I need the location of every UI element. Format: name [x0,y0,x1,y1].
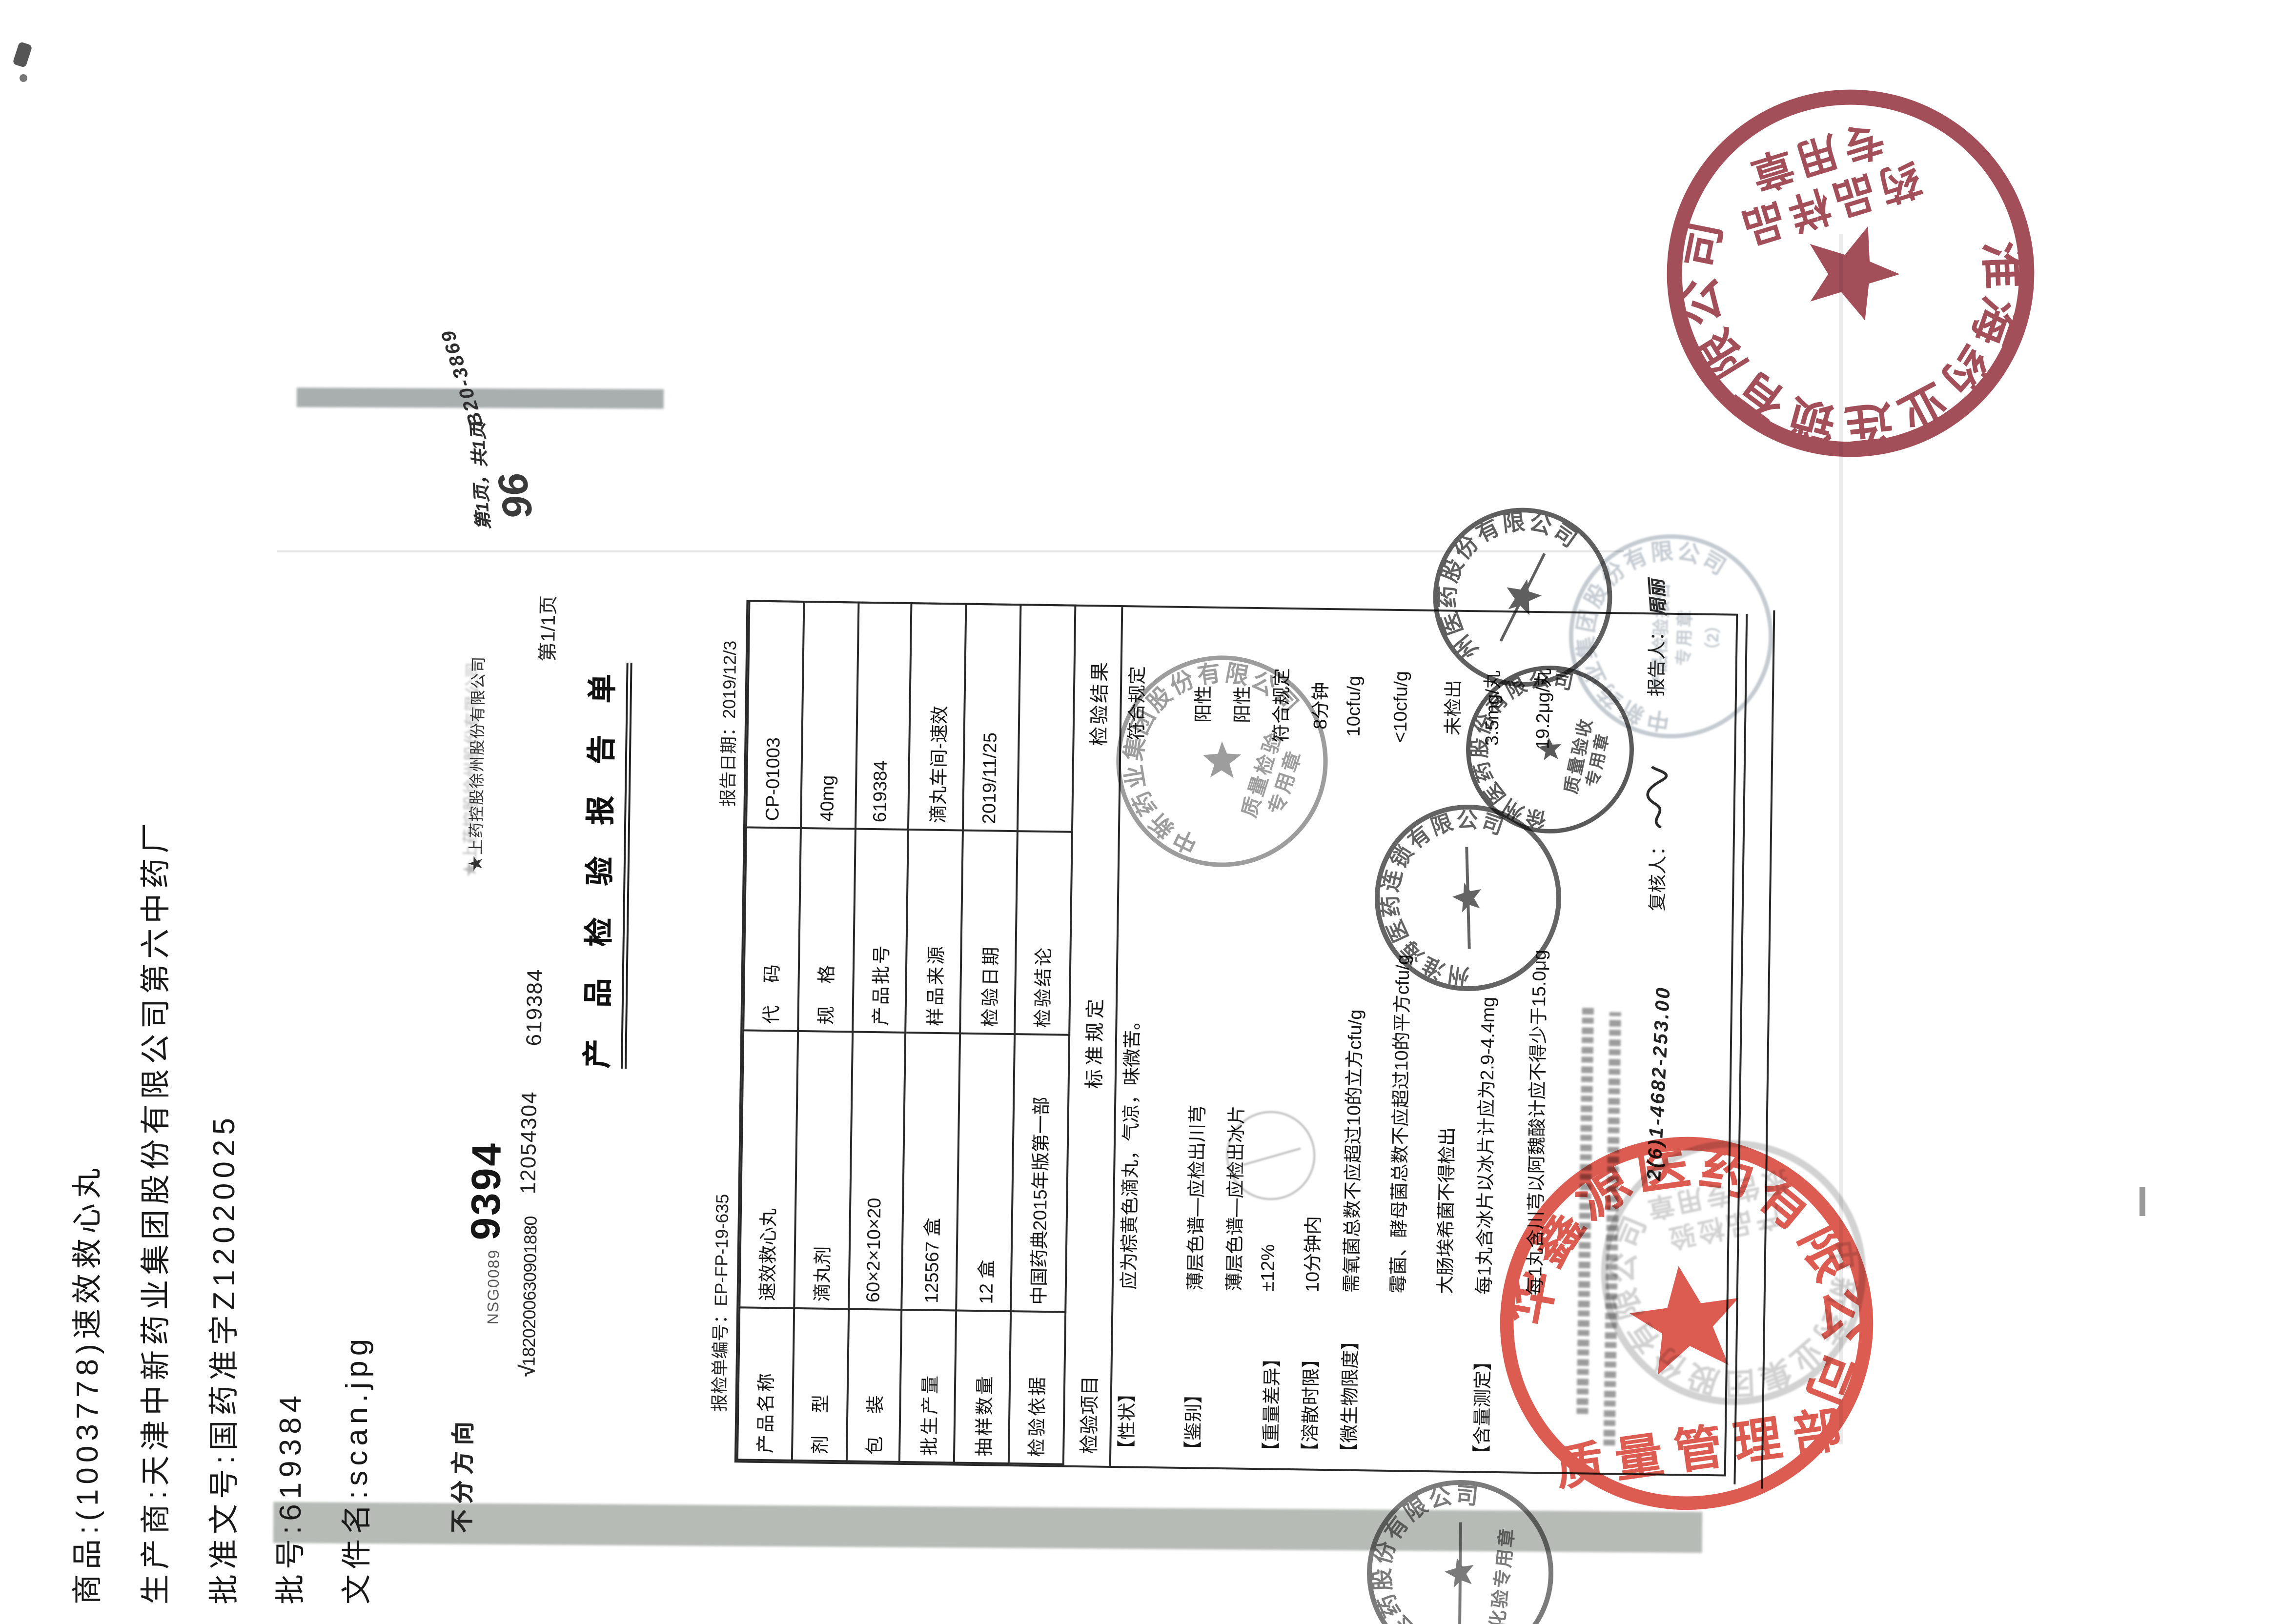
info-value-1-3: CP-01003 [746,601,804,828]
scan-edge-band-bottom [273,1502,1703,1553]
info-value-6-3 [1018,605,1075,832]
item-result: 阳性 [1186,608,1216,800]
svg-text:产品检验报告: 产品检验报告 [1650,581,1672,691]
item-name: 【重量差异】 [1255,1291,1285,1468]
scan-mark-right [2139,1187,2145,1216]
reviewer-line: 复核人： [1642,765,1671,911]
distributor-header-ghost: ★上药控股徐州股份有限公司 [460,661,484,877]
svg-text:质量管理部: 质量管理部 [1552,1401,1856,1496]
item-standard: 薄层色谱—应检出川芎 [1180,800,1214,1291]
handwritten-ref-note: B20-3869 [438,326,489,429]
handwritten-number-96: 96 [491,469,545,522]
item-result: 3.5mg/丸 [1475,612,1505,804]
info-value-6-1: 中国药典2015年版第一部 [1011,1034,1069,1312]
scan-crease-line [277,550,1624,552]
svg-text:化验专用章: 化验专用章 [1487,1525,1519,1624]
info-label-3-1: 产品批号 [852,829,909,1033]
side-meta-line-4: 批号:619384 [267,1391,310,1604]
item-row-2: 【鉴别】薄层色谱—应检出川芎阳性 [1177,608,1228,1467]
svg-text:天津中新药业集团股份有限公司: 天津中新药业集团股份有限公司 [1569,534,1732,737]
item-row-9: 【含量测定】每1丸含冰片以冰片计应为2.9-4.4mg3.5mg/丸 [1466,612,1529,1471]
svg-text:质量检验: 质量检验 [1238,729,1286,820]
item-row-5: 【溶散时限】10分钟内8分钟 [1294,609,1345,1469]
item-name: 【溶散时限】 [1294,1292,1324,1469]
info-value-4-3: 滴丸车间-速效 [909,603,967,831]
info-label-3-1: 包 装 [846,1309,902,1462]
barcode-number: 9394 [464,1141,510,1240]
info-value-2-1: 滴丸剂 [794,1031,852,1309]
side-meta-line-5: 文件名:scan.jpg [334,1334,377,1604]
scanned-report-image: 商品:(1003778)速效救心丸生产商:天津中新药业集团股份有限公司第六中药厂… [0,0,2282,1624]
item-row-7: 霉菌、酵母菌总数不应超过10的平方cfu/g<10cfu/g [1380,611,1439,1470]
info-value-4-1: 125567 盒 [902,1033,960,1310]
stamp-round-grey-mid: 天津中新药业集团股份有限公司质量检验专用章 [1080,615,1364,907]
barcode-text: NSG0089 9394 [463,1141,512,1325]
info-row-5: 抽样数量12 盒检验日期2019/11/25 [955,604,1021,1463]
item-standard: 10分钟内 [1297,801,1331,1292]
item-result: <10cfu/g [1389,611,1413,803]
star-icon [1443,1557,1474,1589]
svg-text:药品样品: 药品样品 [1732,153,1927,253]
svg-text:产品检验: 产品检验 [1664,1200,1784,1253]
scan-mark-topleft [12,41,32,68]
item-name [1216,1291,1219,1467]
item-standard: ±12% [1258,801,1286,1292]
info-value-2-3: 40mg [800,602,858,829]
info-value-3-1: 60×2×10×20 [848,1032,906,1309]
item-standard: 每1丸含冰片以冰片计应为2.9-4.4mg [1468,804,1503,1295]
stamp-small-circle [1213,1100,1329,1210]
item-standard: 应为棕黄色滴丸，气凉，味微苦。 [1113,799,1147,1290]
item-result: 符合规定 [1264,609,1294,801]
info-label-4-1: 样品来源 [906,830,963,1034]
side-meta-line-2: 生产商:天津中新药业集团股份有限公司第六中药厂 [133,818,176,1604]
handwritten-page-note: 第1页，共1页 [464,422,495,530]
item-row-1: 【性状】应为棕黄色滴丸，气凉，味微苦。符合规定 [1111,607,1189,1467]
serial-handmark: √ [517,1366,540,1378]
svg-text:专用章: 专用章 [1264,747,1306,817]
item-name: 【鉴别】 [1177,1290,1207,1467]
bottom-rule-2 [1761,610,1776,1489]
item-result: 10cfu/g [1343,610,1366,802]
stamp-report-seal-2: 天津中新药业集团股份有限公司产品检验报告专用章（2） [1558,525,1784,747]
stamp-jiangsu-huaxinyuan-red: 江苏华鑫源医药有限公司质量管理部 [1455,1103,1918,1543]
stamp-oval-acceptance-3: 徐州淮海医药连锁有限公司 [1356,793,1580,1002]
info-row-4: 批生产量125567 盒样品来源滴丸车间-速效 [900,603,966,1462]
side-meta-line-3: 批准文号:国药准字Z12020025 [201,1113,244,1604]
item-row-4: 【重量差异】±12%符合规定 [1255,609,1306,1468]
report-title: 产 品 检 验 报 告 单 [576,662,632,1069]
item-standard: 大肠埃希菌不得检出 [1429,803,1464,1294]
item-result: 8分钟 [1304,609,1333,801]
item-standard: 薄层色谱—应检出冰片 [1219,800,1253,1291]
scan-mark-topleft-2 [20,74,27,82]
item-standard: 需氧菌总数不应超过10的立方cfu/g [1336,802,1370,1293]
items-header-row: 检验项目 标准规定 检验结果 [1064,607,1123,1466]
code-number: 12054304 [517,1091,542,1194]
svg-text:徐州医药股份有限公司: 徐州医药股份有限公司 [1453,653,1578,832]
items-body: 【性状】应为棕黄色滴丸，气凉，味微苦。符合规定【鉴别】薄层色谱—应检出川芎阳性薄… [1111,607,1579,1472]
svg-text:徐州医药股份有限公司: 徐州医药股份有限公司 [1401,475,1584,681]
info-row-2: 剂 型滴丸剂规 格40mg [792,602,858,1461]
stamp-oval-acceptance-2: 徐州医药股份有限公司质量验收专用章 [1443,630,1657,869]
star-icon [1624,1259,1748,1378]
scan-edge-band-topleft [297,387,664,408]
item-result: 19.2μg/丸 [1526,613,1556,805]
item-row-6: 【微生物限度】需氧菌总数不应超过10的立方cfu/g10cfu/g [1333,610,1392,1469]
item-standard: 每1丸含川芎以阿魏酸计应不得少于15.0μg [1519,804,1553,1295]
stamp-oval-lab: 徐州医药股份有限公司化验专用章 [1343,1465,1577,1624]
side-meta-line-1: 商品:(1003778)速效救心丸 [64,1163,107,1604]
svg-text:（2）: （2） [1703,617,1722,659]
svg-text:专用章: 专用章 [1674,608,1695,666]
svg-text:徐州淮海医药连锁有限公司: 徐州淮海医药连锁有限公司 [1372,802,1508,990]
info-label-5-1: 抽样数量 [955,1311,1011,1464]
item-result: 阳性 [1225,609,1255,800]
star-icon [1197,737,1243,784]
info-value-5-1: 12 盒 [957,1034,1015,1311]
svg-text:专用章: 专用章 [1583,731,1613,789]
page-indicator: 第1/1页 [531,595,561,662]
star-icon [1497,572,1545,621]
bottom-rule-1 [1733,614,1748,1484]
stamp-oval-acceptance-1: 徐州医药股份有限公司 [1382,450,1663,745]
stamp-faint-bottom: 天津中新药业集团股份有限公司产品检验报告专用章 [1563,1107,1903,1439]
info-label-2-1: 规 格 [797,828,855,1032]
item-result: 符合规定 [1120,607,1150,799]
info-value-3-3: 619384 [855,603,912,830]
svg-text:徐州淮海药业连锁有限公司: 徐州淮海药业连锁有限公司 [1646,118,2076,499]
svg-text:天津中新药业集团股份有限公司: 天津中新药业集团股份有限公司 [1094,633,1310,876]
item-name [1517,1295,1519,1472]
reviewer-signature-scribble [1643,765,1671,832]
info-row-3: 包 装60×2×10×20产品批号619384 [846,603,912,1462]
items-header-result: 检验结果 [1081,607,1113,799]
star-icon [1451,882,1482,913]
handwritten-code: 2(6)1-4682-253.00 [1645,985,1675,1181]
star-icon [1535,735,1562,763]
info-label-5-1: 检验日期 [960,831,1018,1035]
info-label-6-1: 检验依据 [1009,1311,1065,1464]
fineprint-smudge-1 [1576,1004,1594,1414]
info-label-6-1: 检验结论 [1015,831,1072,1035]
barcode-prefix: NSG0089 [485,1249,503,1324]
item-result: 未检出 [1436,611,1466,803]
svg-text:天津中新药业集团股份有限公司: 天津中新药业集团股份有限公司 [1590,1162,1885,1424]
item-name: 【含量测定】 [1466,1295,1496,1471]
item-standard: 霉菌、酵母菌总数不应超过10的平方cfu/g [1383,802,1417,1293]
info-label-1-1: 产品名称 [737,1307,794,1461]
item-name: 【性状】 [1111,1289,1141,1466]
info-table: 产品名称速效救心丸代 码CP-01003剂 型滴丸剂规 格40mg包 装60×2… [736,600,1076,1465]
svg-text:江苏华鑫源医药有限公司: 江苏华鑫源医药有限公司 [1475,1112,1891,1466]
item-name: 【微生物限度】 [1333,1293,1363,1469]
info-label-4-1: 批生产量 [900,1310,957,1463]
item-row-8: 大肠埃希菌不得检出未检出 [1427,611,1478,1471]
info-value-1-1: 速效救心丸 [739,1030,797,1308]
item-row-10: 每1丸含川芎以阿魏酸计应不得少于15.0μg19.2μg/丸 [1517,613,1580,1472]
report-table: 产品名称速效救心丸代 码CP-01003剂 型滴丸剂规 格40mg包 装60×2… [734,600,1738,1476]
request-number: 报检单编号：EP-FP-19-635 [706,1194,734,1412]
info-value-5-3: 2019/11/25 [963,604,1021,832]
scan-paper-right-edge [1839,234,1843,1444]
batch-number-overlay: 619384 [524,968,548,1046]
item-name [1380,1293,1383,1470]
info-row-1: 产品名称速效救心丸代 码CP-01003 [737,601,804,1460]
report-document: 不分方向 NSG0089 9394 ★上药控股徐州股份有限公司 ★上药控股徐州股… [273,355,1841,1509]
star-icon [1794,222,1910,334]
svg-text:质量验收: 质量验收 [1561,716,1596,795]
fineprint-smudge-2 [1603,1012,1621,1445]
svg-text:专用章: 专用章 [1740,113,1890,199]
item-name [1427,1294,1429,1470]
orientation-note: 不分方向 [445,1416,479,1533]
reporter-name: 周丽 [1641,579,1671,618]
svg-text:徐州医药股份有限公司: 徐州医药股份有限公司 [1360,1473,1482,1624]
reporter-line: 报告人： 周丽 [1641,580,1670,696]
serial-number: √1820200630901880 [517,1216,543,1378]
items-header-standard: 标准规定 [1074,799,1110,1285]
item-row-3: 薄层色谱—应检出冰片阳性 [1216,609,1267,1468]
info-row-6: 检验依据中国药典2015年版第一部检验结论 [1009,605,1075,1464]
info-label-2-1: 剂 型 [792,1308,848,1462]
stamp-xuzhou-huaihai-darkred: 徐州淮海药业连锁有限公司药品样品专用章 [1588,29,2113,518]
items-header-item: 检验项目 [1072,1284,1103,1466]
info-label-1-1: 代 码 [743,827,800,1031]
distributor-header: ★上药控股徐州股份有限公司 [466,655,490,872]
svg-text:报告专用章: 报告专用章 [1643,1165,1791,1224]
report-date: 报告日期：2019/12/3 [714,640,742,807]
